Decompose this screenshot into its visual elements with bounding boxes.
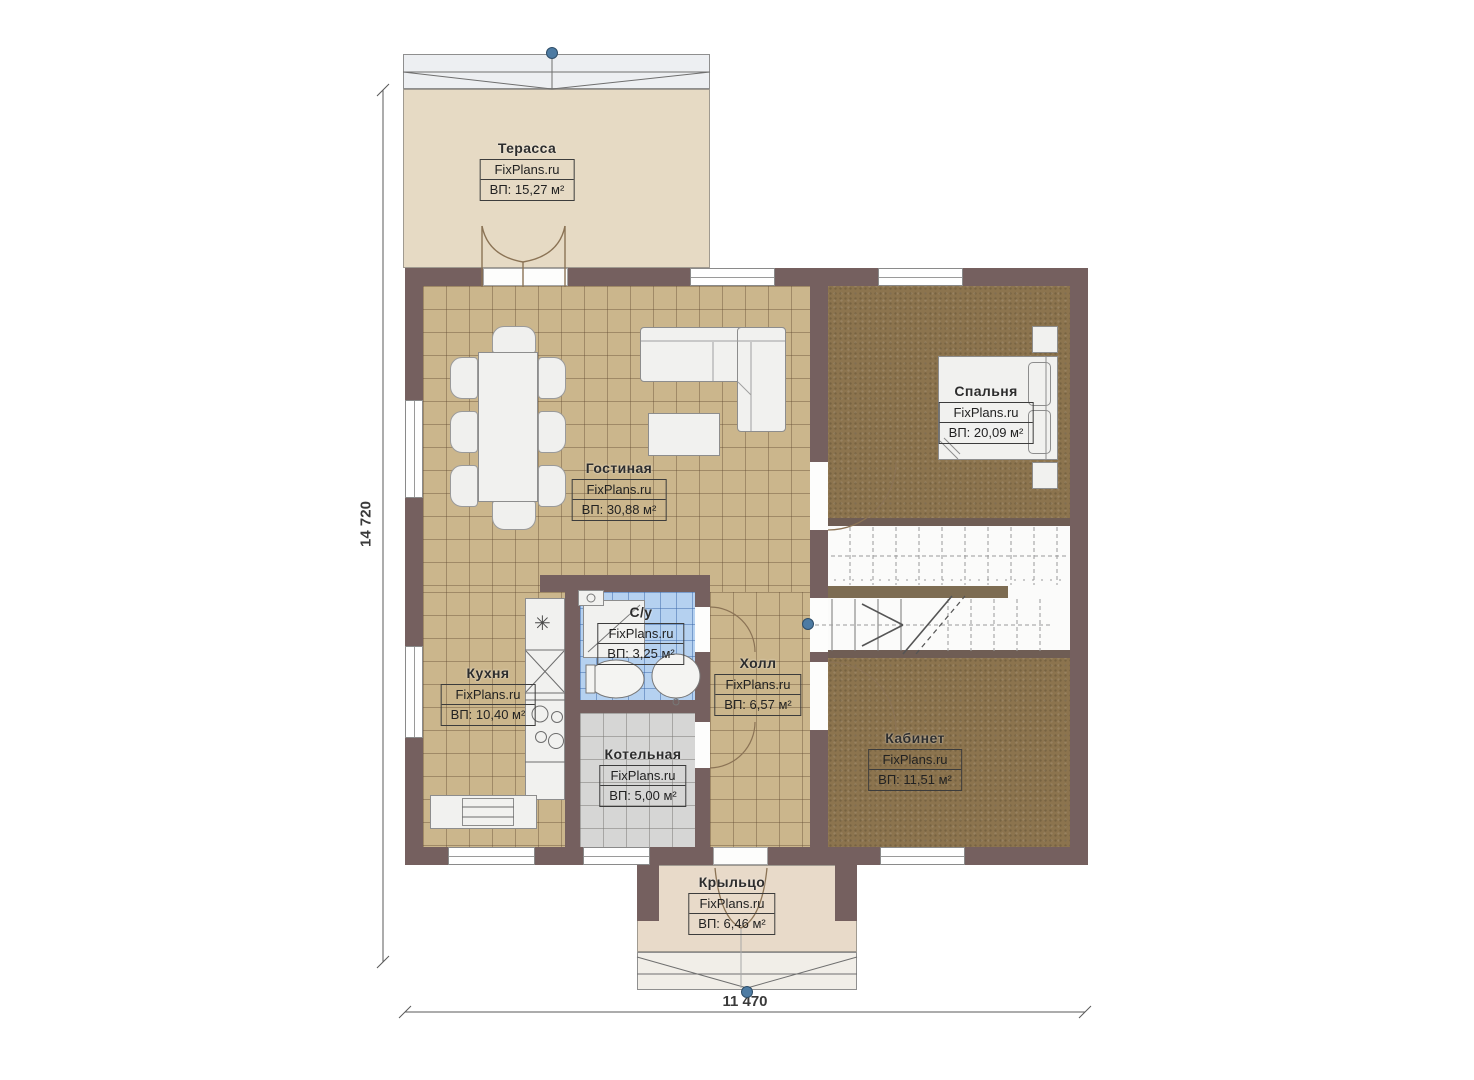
room-info-box: FixPlans.ru ВП: 30,88 м² <box>572 479 667 521</box>
entrance-door-opening <box>713 847 768 865</box>
room-info-box: FixPlans.ru ВП: 5,00 м² <box>599 765 686 807</box>
room-name: Терасса <box>480 140 575 156</box>
room-info-box: FixPlans.ru ВП: 15,27 м² <box>480 159 575 201</box>
window-frame-line <box>449 856 534 857</box>
room-brand: FixPlans.ru <box>481 160 574 180</box>
window-living-top <box>690 268 775 286</box>
dining-chair <box>538 465 566 507</box>
boiler-door-opening <box>695 722 710 768</box>
room-area: ВП: 6,57 м² <box>715 695 800 715</box>
window-kitchen-left <box>405 646 423 738</box>
window-living-left <box>405 400 423 498</box>
room-label-living: Гостиная FixPlans.ru ВП: 30,88 м² <box>572 460 667 521</box>
dining-chair <box>450 411 478 453</box>
room-label-porch: Крыльцо FixPlans.ru ВП: 6,46 м² <box>688 874 775 935</box>
stairs-landing <box>828 586 1008 598</box>
room-name: Спальня <box>939 383 1034 399</box>
wall-kitchen-bath <box>565 592 580 847</box>
wall-bedroom-stairs <box>828 518 1070 526</box>
room-name: Холл <box>714 655 801 671</box>
nightstand <box>1032 462 1058 489</box>
sofa-right-section <box>737 327 786 432</box>
room-brand: FixPlans.ru <box>940 403 1033 423</box>
kitchen-sink-star-icon: ✳ <box>534 611 551 636</box>
window-frame-line <box>691 277 774 278</box>
room-label-hall: Холл FixPlans.ru ВП: 6,57 м² <box>714 655 801 716</box>
room-area: ВП: 5,00 м² <box>600 786 685 806</box>
room-brand: FixPlans.ru <box>598 624 683 644</box>
wall-bathroom-top <box>540 575 710 592</box>
room-label-office: Кабинет FixPlans.ru ВП: 11,51 м² <box>868 730 962 791</box>
grip-dot-terrace[interactable] <box>546 47 558 59</box>
wall-bath-boiler <box>580 700 695 713</box>
room-label-bathroom: С/у FixPlans.ru ВП: 3,25 м² <box>597 604 684 665</box>
grip-dot-porch[interactable] <box>741 986 753 998</box>
room-label-terrace: Терасса FixPlans.ru ВП: 15,27 м² <box>480 140 575 201</box>
room-area: ВП: 30,88 м² <box>573 500 666 520</box>
room-area: ВП: 3,25 м² <box>598 644 683 664</box>
dining-chair <box>492 326 536 354</box>
room-area: ВП: 15,27 м² <box>481 180 574 200</box>
room-brand: FixPlans.ru <box>689 894 774 914</box>
room-info-box: FixPlans.ru ВП: 11,51 м² <box>868 749 962 791</box>
room-brand: FixPlans.ru <box>869 750 961 770</box>
room-info-box: FixPlans.ru ВП: 3,25 м² <box>597 623 684 665</box>
room-info-box: FixPlans.ru ВП: 6,46 м² <box>688 893 775 935</box>
room-name: Кабинет <box>868 730 962 746</box>
room-brand: FixPlans.ru <box>600 766 685 786</box>
french-door-opening <box>483 268 568 286</box>
dining-table <box>478 352 538 502</box>
office-door-opening <box>810 662 828 730</box>
dining-chair <box>450 357 478 399</box>
terrace-roof-band <box>403 54 710 89</box>
window-office-bottom <box>880 847 965 865</box>
room-name: С/у <box>597 604 684 620</box>
dining-chair <box>492 500 536 530</box>
window-frame-line <box>414 647 415 737</box>
room-brand: FixPlans.ru <box>573 480 666 500</box>
room-brand: FixPlans.ru <box>715 675 800 695</box>
bathroom-door-opening <box>695 607 710 652</box>
room-info-box: FixPlans.ru ВП: 6,57 м² <box>714 674 801 716</box>
room-name: Крыльцо <box>688 874 775 890</box>
dishwasher <box>462 798 514 826</box>
room-label-bedroom: Спальня FixPlans.ru ВП: 20,09 м² <box>939 383 1034 444</box>
window-frame-line <box>584 856 649 857</box>
room-info-box: FixPlans.ru ВП: 20,09 м² <box>939 402 1034 444</box>
porch-wall-stub-left <box>637 865 659 921</box>
room-brand: FixPlans.ru <box>442 685 535 705</box>
dining-chair <box>538 357 566 399</box>
room-area: ВП: 11,51 м² <box>869 770 961 790</box>
room-area: ВП: 10,40 м² <box>442 705 535 725</box>
window-frame-line <box>414 401 415 497</box>
room-label-kitchen: Кухня FixPlans.ru ВП: 10,40 м² <box>441 665 536 726</box>
floor-plan-page: ✳ <box>0 0 1474 1080</box>
porch-steps <box>637 952 857 990</box>
room-info-box: FixPlans.ru ВП: 10,40 м² <box>441 684 536 726</box>
dimension-height-label: 14 720 <box>358 501 375 547</box>
hall-floor <box>710 592 810 847</box>
bedroom-door-opening <box>810 462 828 530</box>
window-bedroom-top <box>878 268 963 286</box>
coffee-table <box>648 413 720 456</box>
dining-chair <box>450 465 478 507</box>
porch-wall-stub-right <box>835 865 857 921</box>
room-area: ВП: 6,46 м² <box>689 914 774 934</box>
wall-living-bedroom <box>810 286 828 847</box>
room-label-boiler: Котельная FixPlans.ru ВП: 5,00 м² <box>599 746 686 807</box>
room-name: Кухня <box>441 665 536 681</box>
window-kitchen-bottom <box>448 847 535 865</box>
window-frame-line <box>881 856 964 857</box>
room-name: Гостиная <box>572 460 667 476</box>
wall-stairs-office <box>828 650 1070 658</box>
window-frame-line <box>879 277 962 278</box>
window-boiler-bottom <box>583 847 650 865</box>
room-area: ВП: 20,09 м² <box>940 423 1033 443</box>
room-name: Котельная <box>599 746 686 762</box>
grip-dot-stairs[interactable] <box>802 618 814 630</box>
nightstand <box>1032 326 1058 353</box>
dining-chair <box>538 411 566 453</box>
